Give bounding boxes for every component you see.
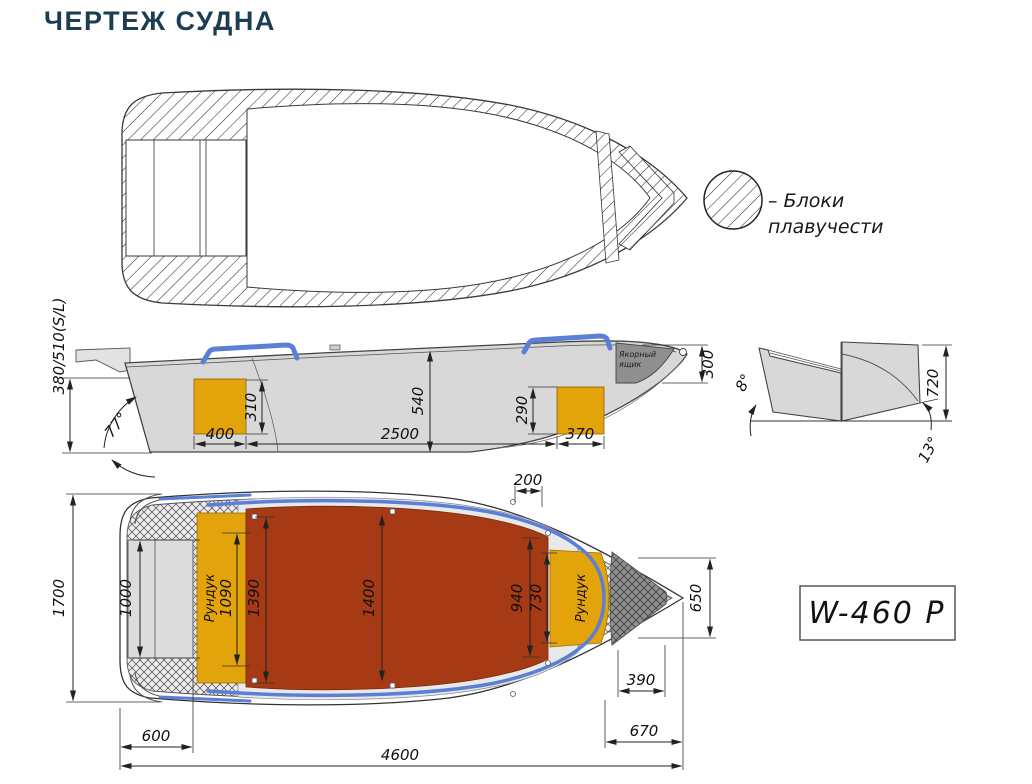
legend-label-line1: – Блоки xyxy=(768,190,844,212)
dim-290-label: 290 xyxy=(513,396,531,425)
dim-390-label: 390 xyxy=(627,671,656,689)
plan-anchor-well xyxy=(610,552,667,645)
drawing-canvas: – Блоки плавучести Якорный ящик 380/510(… xyxy=(0,0,1032,784)
dim-2500-label: 2500 xyxy=(381,425,419,443)
dim-deadrise-angle: 13° xyxy=(914,403,942,466)
dim-310-label: 310 xyxy=(242,393,260,422)
side-cleat xyxy=(330,345,340,350)
plan-bow-locker-label: Рундук xyxy=(574,574,589,623)
legend-label-line2: плавучести xyxy=(768,216,883,238)
top-view-stern-platform xyxy=(126,140,246,256)
model-badge: W-460 P xyxy=(800,586,955,640)
dim-720-label: 720 xyxy=(924,369,942,398)
section-bottom-ext xyxy=(920,399,938,403)
section-aft-half xyxy=(759,348,841,421)
dim-4600: 4600 xyxy=(120,746,682,770)
dim-flare-angle-label: 8° xyxy=(732,371,756,395)
dim-300-label: 300 xyxy=(699,350,717,379)
plan-view: Рундук Рундук 1700 1000 1090 1390 xyxy=(50,471,716,770)
dim-flare-angle: 8° xyxy=(732,371,756,436)
dim-650-label: 650 xyxy=(687,584,705,613)
dim-370-label: 370 xyxy=(566,425,595,443)
buoyancy-swatch-icon xyxy=(704,171,762,229)
top-view xyxy=(122,89,687,307)
dim-1700-label: 1700 xyxy=(50,579,68,617)
dim-940-label: 940 xyxy=(508,584,526,613)
dim-transom-height-label: 380/510(S/L) xyxy=(50,298,68,395)
transom-section-view: 8° 720 13° xyxy=(732,342,952,466)
anchor-box-label-line1: Якорный xyxy=(618,350,656,359)
dim-670-label: 670 xyxy=(630,722,659,740)
dim-1400-label: 1400 xyxy=(360,579,378,617)
dim-1090-label: 1090 xyxy=(217,579,235,617)
buoyancy-legend: – Блоки плавучести xyxy=(704,171,883,238)
plan-deck-floor xyxy=(246,506,548,690)
side-view: Якорный ящик 380/510(S/L) 77° 310 xyxy=(50,298,717,477)
boat-drawing-page: ЧЕРТЕЖ СУДНА xyxy=(0,0,1032,784)
bow-eye xyxy=(680,349,687,356)
dim-730-label: 730 xyxy=(527,584,545,613)
dim-200: 200 xyxy=(514,471,543,507)
dim-transom-angle-label: 77° xyxy=(101,409,132,441)
dim-deadrise-angle-label: 13° xyxy=(914,434,942,466)
dim-600-label: 600 xyxy=(142,727,171,745)
dim-400-label: 400 xyxy=(206,425,235,443)
dim-1000-label: 1000 xyxy=(117,579,135,617)
dim-4600-label: 4600 xyxy=(381,746,419,764)
section-mid-half xyxy=(842,342,920,421)
plan-stern-platform xyxy=(128,540,193,658)
dim-390: 390 xyxy=(618,645,665,697)
plan-stern-locker-label: Рундук xyxy=(203,574,218,623)
model-badge-label: W-460 P xyxy=(808,596,945,631)
dim-540-label: 540 xyxy=(409,387,427,416)
motor-bracket xyxy=(76,348,130,372)
dim-1390-label: 1390 xyxy=(245,579,263,617)
dim-200-label: 200 xyxy=(514,471,543,489)
dim-720: 720 xyxy=(922,345,952,420)
anchor-box-label-line2: ящик xyxy=(619,360,642,369)
